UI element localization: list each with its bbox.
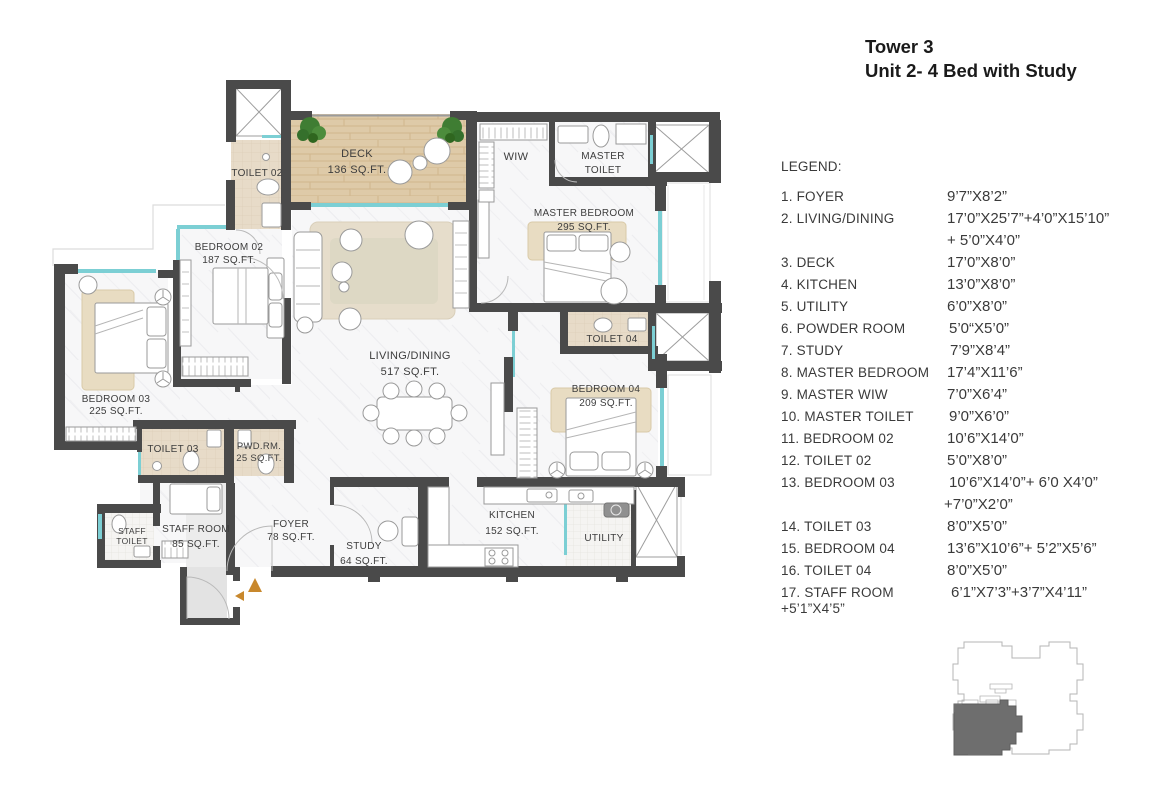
svg-text:TOILET 04: TOILET 04 [586,334,637,345]
svg-text:3. DECK: 3. DECK [781,255,835,270]
svg-text:MASTER BEDROOM: MASTER BEDROOM [534,208,634,219]
svg-text:10’6”X14’0”+ 6’0 X4’0”: 10’6”X14’0”+ 6’0 X4’0” [949,474,1098,491]
svg-text:LEGEND:: LEGEND: [781,159,842,174]
svg-text:TOILET 02: TOILET 02 [231,168,282,179]
svg-text:7. STUDY: 7. STUDY [781,343,843,358]
svg-text:MASTER: MASTER [581,151,624,162]
svg-text:136 SQ.FT.: 136 SQ.FT. [328,164,387,176]
svg-text:TOILET 03: TOILET 03 [147,444,198,455]
svg-text:STAFF: STAFF [118,526,146,536]
svg-text:16. TOILET 04: 16. TOILET 04 [781,563,872,578]
svg-text:1. FOYER: 1. FOYER [781,189,844,204]
svg-text:152 SQ.FT.: 152 SQ.FT. [485,526,539,537]
svg-text:10. MASTER TOILET: 10. MASTER TOILET [781,409,914,424]
svg-text:85 SQ.FT.: 85 SQ.FT. [172,539,220,550]
svg-text:BEDROOM 04: BEDROOM 04 [572,384,641,395]
svg-text:4. KITCHEN: 4. KITCHEN [781,277,857,292]
svg-text:FOYER: FOYER [273,519,309,530]
svg-text:17’0”X25’7”+4’0”X15’10”: 17’0”X25’7”+4’0”X15’10” [947,210,1109,227]
svg-text:LIVING/DINING: LIVING/DINING [369,350,451,362]
svg-text:8’0”X5’0”: 8’0”X5’0” [947,518,1007,535]
svg-text:295 SQ.FT.: 295 SQ.FT. [557,222,611,233]
svg-text:6’0”X8’0”: 6’0”X8’0” [947,298,1007,315]
svg-text:TOILET: TOILET [585,165,622,176]
svg-text:517 SQ.FT.: 517 SQ.FT. [381,366,440,378]
svg-text:TOILET: TOILET [116,536,147,546]
svg-text:KITCHEN: KITCHEN [489,510,535,521]
svg-text:25 SQ.FT.: 25 SQ.FT. [236,453,281,464]
svg-text:187 SQ.FT.: 187 SQ.FT. [202,255,256,266]
svg-text:BEDROOM 03: BEDROOM 03 [82,394,151,405]
svg-text:12. TOILET 02: 12. TOILET 02 [781,453,871,468]
svg-text:15. BEDROOM 04: 15. BEDROOM 04 [781,541,895,556]
svg-text:7’0”X6’4”: 7’0”X6’4” [947,386,1007,403]
svg-text:64 SQ.FT.: 64 SQ.FT. [340,556,388,567]
svg-text:PWD.RM.: PWD.RM. [237,441,281,452]
svg-text:5. UTILITY: 5. UTILITY [781,299,848,314]
svg-text:+7’0”X2’0”: +7’0”X2’0” [944,496,1013,513]
svg-text:STUDY: STUDY [346,541,381,552]
svg-text:10’6”X14’0”: 10’6”X14’0” [947,430,1024,447]
svg-text:78 SQ.FT.: 78 SQ.FT. [267,532,315,543]
svg-text:8’0”X5’0”: 8’0”X5’0” [947,562,1007,579]
svg-text:225 SQ.FT.: 225 SQ.FT. [89,406,143,417]
svg-text:+ 5’0”X4’0”: + 5’0”X4’0” [947,232,1020,249]
svg-text:209 SQ.FT.: 209 SQ.FT. [579,398,633,409]
svg-text:5’0”X8’0”: 5’0”X8’0” [947,452,1007,469]
svg-text:9’0”X6’0”: 9’0”X6’0” [949,408,1009,425]
svg-text:UTILITY: UTILITY [584,533,623,544]
svg-text:7’9”X8’4”: 7’9”X8’4” [950,342,1010,359]
svg-text:5’0“X5’0”: 5’0“X5’0” [949,320,1009,337]
svg-text:BEDROOM 02: BEDROOM 02 [195,242,264,253]
svg-text:17. STAFF ROOM: 17. STAFF ROOM [781,585,894,600]
svg-text:6’1”X7’3”+3’7”X4’11”: 6’1”X7’3”+3’7”X4’11” [951,584,1087,601]
svg-text:+5’1”X4’5”: +5’1”X4’5” [781,601,845,616]
svg-text:14. TOILET 03: 14. TOILET 03 [781,519,871,534]
svg-text:WIW: WIW [504,151,529,163]
svg-text:8. MASTER BEDROOM: 8. MASTER BEDROOM [781,365,929,380]
svg-text:9’7”X8’2”: 9’7”X8’2” [947,188,1007,205]
svg-text:STAFF ROOM: STAFF ROOM [162,524,230,535]
svg-text:Unit 2- 4 Bed with Study: Unit 2- 4 Bed with Study [865,60,1077,81]
svg-text:13’0”X8’0”: 13’0”X8’0” [947,276,1015,293]
svg-text:11. BEDROOM 02: 11. BEDROOM 02 [781,431,894,446]
svg-text:17’0”X8’0”: 17’0”X8’0” [947,254,1015,271]
svg-text:2. LIVING/DINING: 2. LIVING/DINING [781,211,894,226]
svg-text:Tower 3: Tower 3 [865,36,934,57]
svg-text:9. MASTER WIW: 9. MASTER WIW [781,387,888,402]
svg-text:13. BEDROOM 03: 13. BEDROOM 03 [781,475,895,490]
svg-text:6. POWDER ROOM: 6. POWDER ROOM [781,321,905,336]
svg-text:13’6”X10’6”+ 5’2”X5’6”: 13’6”X10’6”+ 5’2”X5’6” [947,540,1097,557]
svg-text:DECK: DECK [341,148,373,160]
svg-text:17’4”X11’6”: 17’4”X11’6” [947,364,1023,381]
